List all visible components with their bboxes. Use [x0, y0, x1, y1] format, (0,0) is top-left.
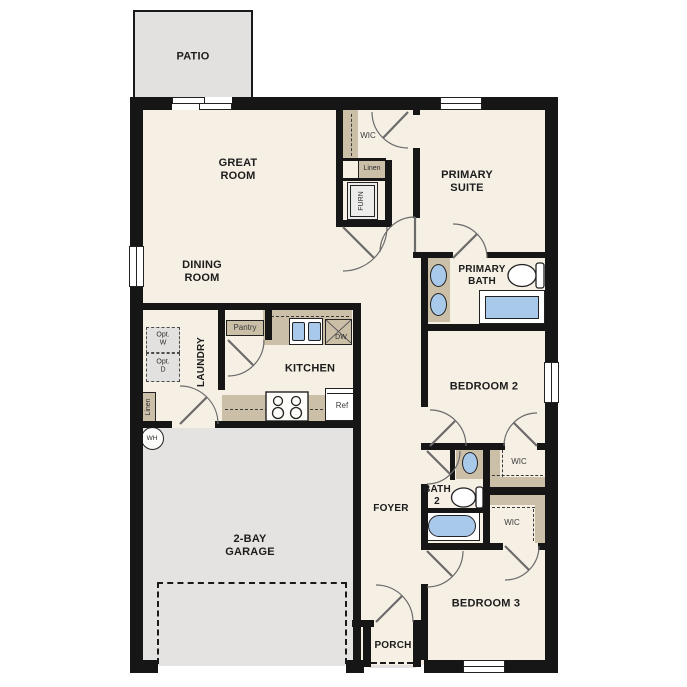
window-mullion: [136, 247, 137, 286]
wall: [421, 443, 505, 450]
wall: [504, 660, 558, 673]
toilet-icon: [505, 261, 546, 290]
wall: [483, 487, 545, 495]
wic3-shelf: [535, 495, 545, 543]
garage-door-line: [157, 582, 347, 664]
sink-icon: [430, 293, 447, 316]
wall: [265, 310, 272, 340]
room-label-primary-bath: PRIMARY BATH: [458, 264, 505, 288]
room-label-laundry: LAUNDRY: [196, 337, 208, 387]
wall: [421, 324, 545, 331]
closet-label-wic-primary: WIC: [360, 131, 376, 141]
room-label-foyer: FOYER: [373, 503, 408, 515]
wall: [450, 448, 455, 480]
room-label-bedroom2: BEDROOM 2: [450, 380, 518, 393]
label-furnace: FURN: [358, 191, 366, 210]
wall: [353, 303, 361, 660]
wall: [215, 421, 360, 428]
wall: [413, 110, 420, 115]
wall: [385, 160, 392, 227]
wall: [336, 178, 386, 181]
room-label-primary-suite: PRIMARY SUITE: [441, 169, 493, 195]
closet-rod-line: [502, 450, 503, 477]
wall: [421, 543, 503, 550]
floor-plan: PATIO GREAT ROOM DINING ROOM PRIMARY SUI…: [0, 0, 687, 687]
window-mullion: [551, 363, 552, 402]
wall: [538, 543, 545, 550]
closet-label-wic-bedroom3: WIC: [504, 518, 520, 528]
counter-edge-line: [266, 316, 349, 317]
wall: [130, 285, 143, 673]
wall: [130, 97, 143, 247]
wall: [143, 421, 172, 428]
wall: [346, 660, 364, 673]
wic2-shelf: [490, 477, 545, 487]
toilet-icon: [450, 485, 485, 510]
wall: [143, 303, 360, 310]
sink-icon: [430, 264, 447, 287]
closet-label-linen-laundry: Linen: [145, 398, 153, 415]
room-label-porch: PORCH: [374, 640, 411, 652]
sliding-door: [199, 103, 232, 110]
wall: [232, 97, 558, 110]
wall: [487, 252, 545, 258]
bathtub-basin: [485, 296, 539, 319]
room-label-patio: PATIO: [177, 50, 210, 63]
window-mullion: [441, 103, 481, 104]
wall: [352, 620, 374, 627]
sink-basin: [308, 322, 321, 341]
label-dishwasher: DW: [335, 334, 347, 342]
label-opt-washer: Opt. W: [156, 332, 169, 349]
label-opt-dryer: Opt. D: [156, 359, 169, 376]
closet-rod-line: [492, 475, 543, 476]
wall: [537, 443, 545, 450]
closet-rod-line: [492, 507, 535, 508]
closet-label-linen-hall: Linen: [363, 165, 380, 173]
wall: [424, 660, 464, 673]
label-water-heater: WH: [147, 435, 158, 443]
wall: [130, 660, 158, 673]
closet-label-wic-bedroom2: WIC: [511, 457, 527, 467]
wall: [413, 620, 424, 627]
wall: [336, 220, 392, 227]
range-icon: [265, 391, 309, 422]
closet-rod-line: [533, 509, 534, 541]
wic2-shelf: [490, 448, 500, 478]
wall: [413, 627, 421, 667]
sink-basin: [292, 322, 305, 341]
wall: [363, 627, 371, 667]
label-refrigerator: Ref: [336, 401, 348, 411]
room-label-great-room: GREAT ROOM: [219, 157, 258, 183]
room-label-garage: 2-BAY GARAGE: [225, 533, 274, 559]
wall: [545, 97, 558, 363]
wall: [413, 252, 453, 258]
room-label-bath2: BATH 2: [423, 484, 451, 508]
wall: [413, 148, 420, 218]
closet-label-pantry: Pantry: [233, 323, 256, 333]
wall: [336, 110, 343, 222]
wall: [421, 258, 428, 407]
room-label-dining-room: DINING ROOM: [182, 259, 222, 285]
room-label-kitchen: KITCHEN: [285, 362, 335, 375]
closet-rod-line: [351, 114, 352, 156]
room-label-bedroom3: BEDROOM 3: [452, 597, 520, 610]
wall: [218, 310, 225, 390]
porch-edge-line: [371, 662, 413, 664]
wall: [421, 508, 483, 513]
wall: [336, 158, 386, 161]
window-mullion: [464, 666, 504, 667]
wall: [545, 402, 558, 673]
bathtub-basin: [428, 515, 476, 537]
sink-icon: [462, 452, 478, 474]
